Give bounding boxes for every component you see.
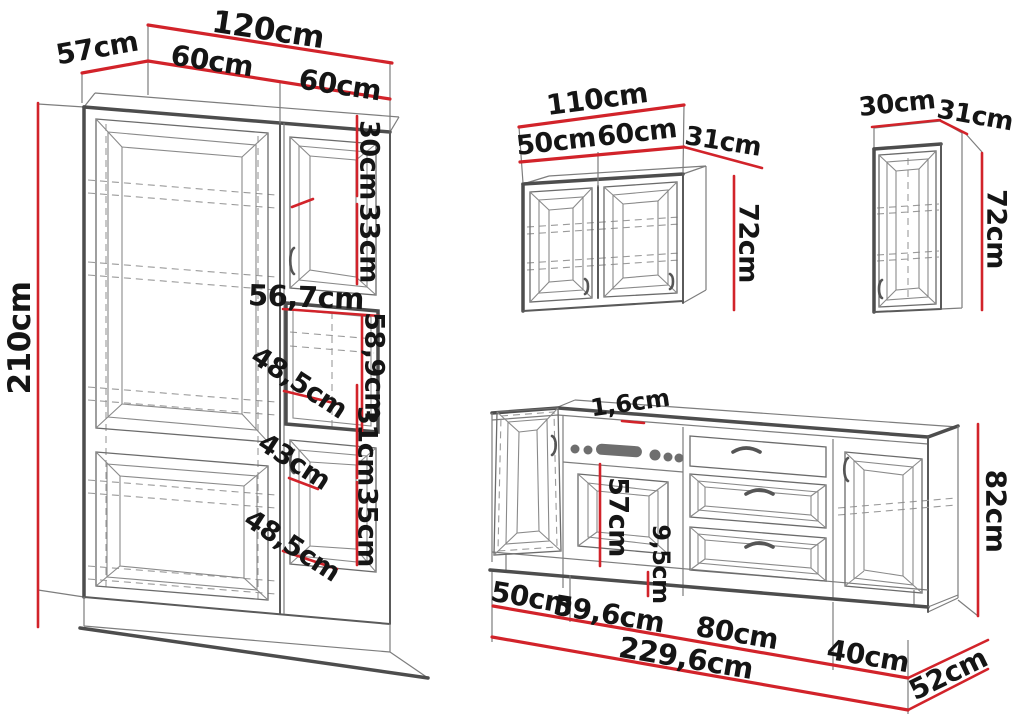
- dim-tall-niche-width: 56,7cm: [247, 278, 364, 316]
- dim-tall-upper-door-width: 30cm: [354, 120, 385, 200]
- drawer-bottom: [690, 527, 826, 581]
- door-handle: [879, 280, 882, 298]
- oven-control-knobs: [571, 443, 684, 462]
- dim-tall-niche-height: 58,9cm: [359, 312, 390, 420]
- base-right-door: [838, 452, 956, 593]
- dim-base-plinth-height: 9,5cm: [647, 524, 675, 603]
- small-wall-cabinet-drawing: [874, 121, 982, 312]
- drawer-middle: [690, 474, 826, 528]
- dim-tall-lower-upper-height: 31cm: [352, 406, 383, 486]
- tall-cabinet-upper-left-door: [96, 119, 268, 442]
- kitchen-dimension-diagram: 120cm 57cm 60cm 60cm 210cm 30cm 33cm 56,…: [0, 0, 1020, 723]
- door-handle: [552, 436, 556, 455]
- dim-tall-lower-lower-height: 35cm: [352, 487, 383, 567]
- drawer-handle: [733, 448, 760, 452]
- dim-wall-height: 72cm: [733, 203, 764, 283]
- dim-base-height: 82cm: [980, 470, 1013, 553]
- drawer-top: [690, 436, 826, 477]
- dim-tall-upper-door-height: 33cm: [354, 203, 385, 283]
- wall-cabinet-left-door: [530, 188, 592, 302]
- drawer-section: [690, 436, 826, 581]
- door-handle: [290, 248, 294, 274]
- wall-cabinet-right-door: [604, 182, 677, 297]
- dim-tall-height: 210cm: [2, 282, 38, 395]
- dim-small-height: 72cm: [981, 189, 1012, 269]
- base-left-door: [494, 408, 561, 555]
- dim-base-oven-door-height: 57cm: [603, 477, 634, 557]
- door-handle: [844, 458, 848, 481]
